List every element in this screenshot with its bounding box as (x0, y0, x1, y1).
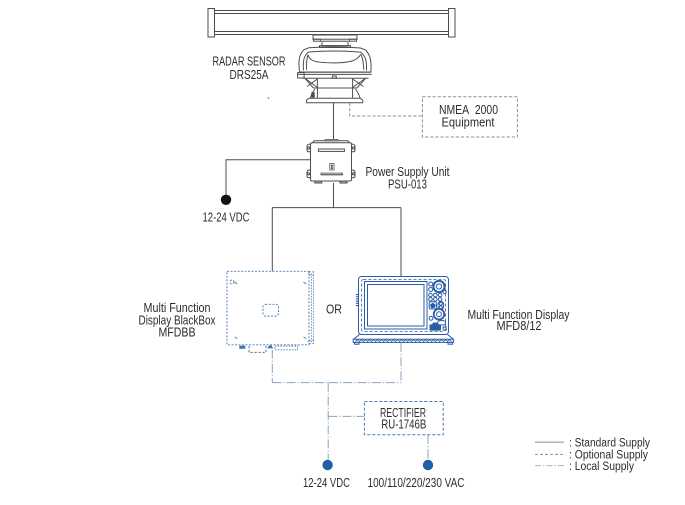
svg-text:100/110/220/230 VAC: 100/110/220/230 VAC (368, 476, 465, 490)
svg-text:Equipment: Equipment (442, 116, 495, 130)
svg-text:12-24 VDC: 12-24 VDC (303, 476, 350, 490)
svg-text:DRS25A: DRS25A (230, 68, 270, 82)
svg-text:PSU-013: PSU-013 (388, 178, 427, 192)
svg-text:: Local Supply: : Local Supply (569, 461, 634, 473)
svg-text:12-24 VDC: 12-24 VDC (203, 211, 250, 225)
svg-text:OR: OR (326, 302, 342, 317)
svg-text:: Standard Supply: : Standard Supply (569, 437, 650, 449)
svg-text:MFD8/12: MFD8/12 (497, 319, 542, 333)
svg-text:: Optional Supply: : Optional Supply (569, 450, 648, 462)
svg-text:RU-1746B: RU-1746B (381, 418, 426, 432)
svg-text:RADAR SENSOR: RADAR SENSOR (213, 55, 286, 69)
svg-text:MFDBB: MFDBB (159, 326, 196, 340)
